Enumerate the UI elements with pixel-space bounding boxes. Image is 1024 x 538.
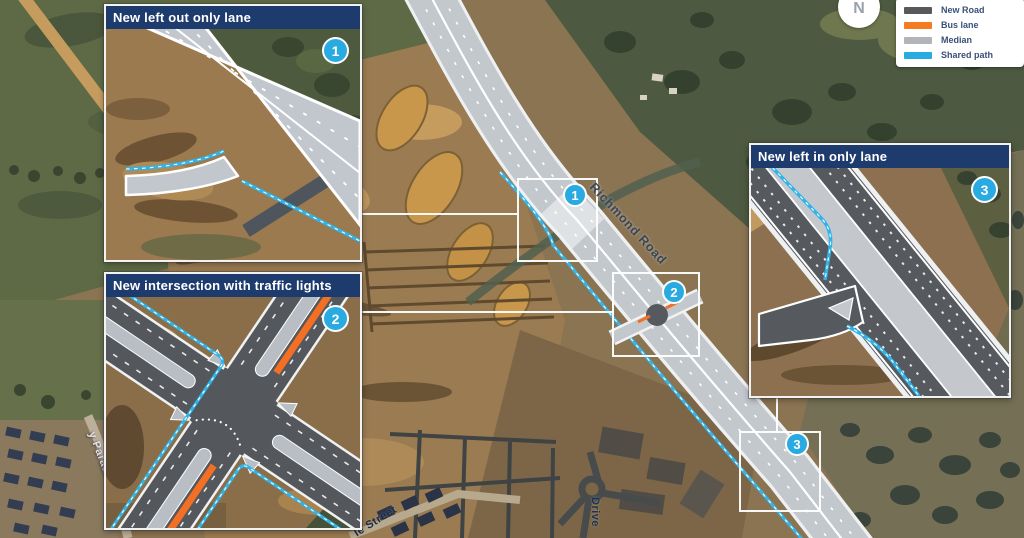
road-project-map: 1 2 3 Richmond Road y Parade le Street D…: [0, 0, 1024, 538]
leader-line-inset3: [776, 396, 778, 433]
legend-swatch-bus-lane: [904, 22, 932, 29]
north-letter: N: [853, 0, 865, 18]
legend-swatch-new-road: [904, 7, 932, 14]
inset-badge-1: 1: [322, 37, 349, 64]
map-callout-badge-2: 2: [662, 280, 686, 304]
inset-panel-left-out-lane: New left out only lane 1: [104, 4, 362, 262]
legend-label-shared-path: Shared path: [941, 51, 993, 60]
legend-label-new-road: New Road: [941, 6, 985, 15]
inset-badge-3: 3: [971, 176, 998, 203]
map-callout-badge-1: 1: [563, 183, 587, 207]
map-callout-badge-3: 3: [785, 432, 809, 456]
legend-label-median: Median: [941, 36, 972, 45]
inset-panel-intersection: New intersection with traffic lights 2: [104, 272, 362, 530]
legend-label-bus-lane: Bus lane: [941, 21, 979, 30]
legend-swatch-shared-path: [904, 52, 932, 59]
legend-item-new-road: New Road: [904, 6, 1016, 15]
inset-panel-left-in-lane: New left in only lane 3: [749, 143, 1011, 398]
legend-item-shared-path: Shared path: [904, 51, 1016, 60]
leader-line-inset2: [362, 311, 613, 313]
inset-title-3: New left in only lane: [751, 145, 1009, 168]
map-legend: New Road Bus lane Median Shared path: [896, 0, 1024, 67]
inset-diagram-left-in-lane: [751, 168, 1009, 396]
legend-item-bus-lane: Bus lane: [904, 21, 1016, 30]
inset-diagram-left-out-lane: [106, 29, 360, 260]
legend-item-median: Median: [904, 36, 1016, 45]
inset-diagram-intersection: [106, 297, 360, 528]
road-label-drive: Drive: [589, 497, 601, 527]
leader-line-inset1: [362, 213, 518, 215]
legend-swatch-median: [904, 37, 932, 44]
inset-badge-2: 2: [322, 305, 349, 332]
inset-title-2: New intersection with traffic lights: [106, 274, 360, 297]
map-callout-box-2: [612, 272, 700, 357]
inset-title-1: New left out only lane: [106, 6, 360, 29]
